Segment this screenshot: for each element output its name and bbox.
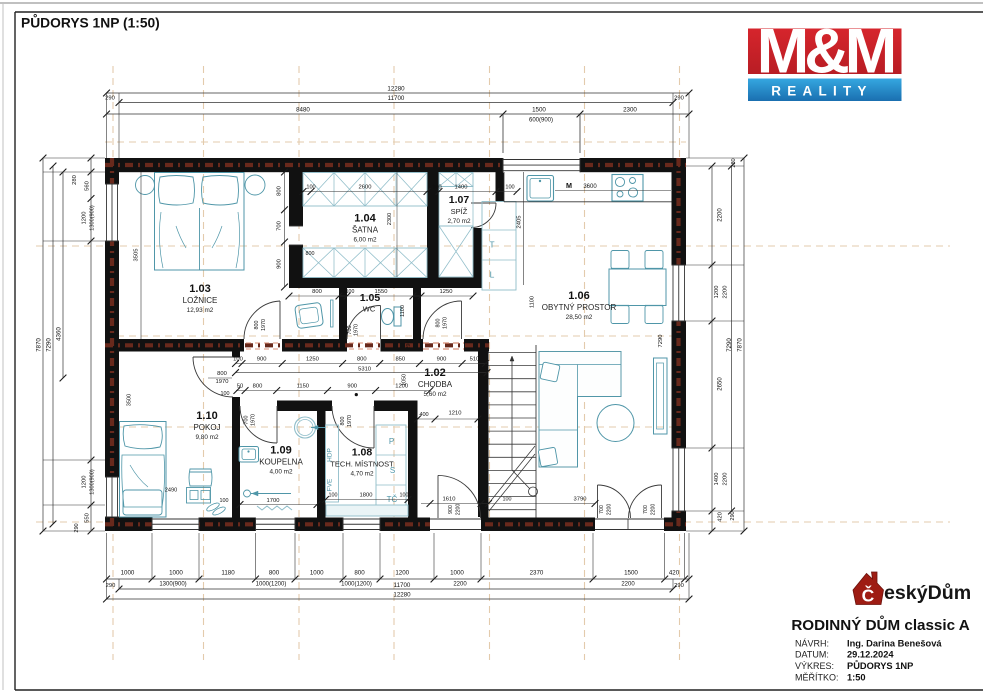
svg-text:3500: 3500 (127, 394, 133, 406)
svg-text:50: 50 (237, 384, 243, 390)
svg-text:1200: 1200 (714, 286, 720, 299)
svg-text:2405: 2405 (517, 216, 523, 229)
svg-text:900: 900 (347, 384, 357, 390)
svg-text:WC: WC (363, 305, 376, 314)
svg-text:3790: 3790 (574, 497, 587, 503)
svg-text:1150: 1150 (297, 384, 309, 390)
svg-text:2200: 2200 (607, 504, 613, 516)
svg-text:KOUPELNA: KOUPELNA (259, 458, 303, 467)
svg-text:REALITY: REALITY (771, 84, 872, 99)
svg-text:800: 800 (306, 251, 315, 257)
svg-text:12,93 m2: 12,93 m2 (187, 307, 214, 314)
svg-text:PŮDORYS 1NP: PŮDORYS 1NP (847, 660, 913, 671)
svg-text:2490: 2490 (165, 488, 177, 494)
svg-text:POKOJ: POKOJ (193, 423, 220, 432)
svg-text:700: 700 (599, 505, 605, 514)
svg-text:4,00 m2: 4,00 m2 (269, 469, 293, 476)
svg-text:1.10: 1.10 (196, 410, 217, 422)
svg-text:290: 290 (674, 583, 684, 589)
svg-text:2600: 2600 (359, 185, 372, 191)
svg-text:1200: 1200 (82, 212, 88, 225)
svg-text:1200: 1200 (395, 570, 409, 577)
svg-text:NÁVRH:: NÁVRH: (795, 639, 829, 649)
svg-text:700: 700 (277, 221, 283, 231)
svg-text:2,70 m2: 2,70 m2 (447, 218, 471, 225)
svg-text:100: 100 (503, 497, 512, 503)
svg-text:7290: 7290 (46, 338, 53, 352)
svg-text:280: 280 (72, 175, 78, 185)
svg-text:P: P (389, 437, 394, 446)
svg-text:1250: 1250 (440, 289, 453, 295)
svg-text:12280: 12280 (393, 592, 411, 599)
svg-text:T: T (489, 240, 494, 250)
svg-text:800: 800 (340, 417, 346, 426)
svg-text:7870: 7870 (737, 338, 744, 352)
svg-text:1.07: 1.07 (449, 194, 470, 206)
svg-text:100: 100 (233, 357, 243, 363)
svg-text:1970: 1970 (347, 415, 353, 427)
svg-text:M: M (566, 181, 572, 190)
svg-text:1500: 1500 (532, 107, 546, 114)
svg-text:1.09: 1.09 (270, 445, 291, 457)
svg-text:LOŽNICE: LOŽNICE (183, 296, 218, 305)
svg-text:2300: 2300 (387, 213, 393, 225)
svg-text:1100: 1100 (400, 305, 406, 317)
svg-text:900: 900 (277, 259, 283, 269)
svg-text:1300(900): 1300(900) (90, 205, 96, 231)
svg-text:900: 900 (437, 357, 447, 363)
svg-text:1000: 1000 (169, 570, 183, 577)
svg-text:1700: 1700 (267, 498, 280, 504)
svg-text:800: 800 (312, 289, 322, 295)
svg-text:100: 100 (221, 391, 230, 397)
svg-text:2300: 2300 (623, 107, 637, 114)
svg-text:Č: Č (862, 585, 875, 606)
svg-text:1.04: 1.04 (354, 213, 376, 225)
svg-text:100: 100 (329, 493, 338, 499)
svg-text:290: 290 (674, 96, 684, 102)
svg-text:100: 100 (400, 493, 409, 499)
svg-text:8480: 8480 (296, 107, 310, 114)
svg-text:9,80 m2: 9,80 m2 (195, 434, 219, 441)
svg-text:400: 400 (419, 412, 428, 418)
svg-text:11700: 11700 (388, 95, 405, 102)
svg-text:2200: 2200 (621, 582, 635, 588)
svg-text:1000: 1000 (310, 570, 324, 577)
svg-text:1000(1200): 1000(1200) (256, 582, 287, 588)
svg-text:1970: 1970 (354, 324, 360, 336)
svg-text:420: 420 (718, 512, 724, 522)
svg-text:L: L (490, 270, 495, 280)
svg-text:2200: 2200 (723, 286, 729, 299)
svg-text:3600: 3600 (583, 184, 597, 190)
svg-text:28,50 m2: 28,50 m2 (566, 314, 593, 321)
svg-text:800: 800 (217, 371, 227, 377)
svg-text:Ing. Darina Benešová: Ing. Darina Benešová (847, 639, 942, 649)
svg-text:2200: 2200 (723, 473, 729, 486)
svg-text:800: 800 (436, 319, 442, 328)
svg-text:CHODBA: CHODBA (418, 380, 453, 389)
svg-text:1200: 1200 (395, 384, 408, 390)
svg-text:850: 850 (395, 357, 405, 363)
svg-text:2200: 2200 (453, 582, 467, 588)
svg-text:1200: 1200 (82, 476, 88, 489)
svg-text:700: 700 (643, 505, 649, 514)
svg-text:100: 100 (346, 289, 355, 295)
svg-text:1300(900): 1300(900) (90, 469, 96, 495)
svg-text:2200: 2200 (718, 208, 724, 222)
svg-text:1180: 1180 (221, 570, 235, 577)
svg-text:100: 100 (306, 185, 315, 191)
svg-text:DATUM:: DATUM: (795, 650, 829, 660)
svg-text:550: 550 (85, 513, 91, 523)
svg-text:2650: 2650 (718, 377, 724, 391)
svg-text:600(900): 600(900) (529, 118, 553, 124)
svg-text:1800: 1800 (360, 493, 373, 499)
svg-text:1400: 1400 (455, 185, 468, 191)
svg-text:1000(1200): 1000(1200) (341, 582, 372, 588)
svg-text:1.06: 1.06 (568, 290, 589, 302)
svg-text:800: 800 (354, 570, 365, 577)
svg-text:1300(900): 1300(900) (159, 582, 186, 588)
svg-text:MĚŘÍTKO:: MĚŘÍTKO: (795, 673, 839, 683)
svg-text:800: 800 (269, 570, 280, 577)
svg-text:1.08: 1.08 (352, 447, 373, 459)
svg-text:6,00 m2: 6,00 m2 (353, 237, 377, 244)
svg-text:TECH. MÍSTNOST: TECH. MÍSTNOST (330, 460, 394, 469)
svg-text:1550: 1550 (375, 289, 388, 295)
svg-text:1210: 1210 (449, 411, 462, 417)
svg-text:ŠATNA: ŠATNA (352, 226, 379, 235)
svg-text:510: 510 (470, 357, 480, 363)
svg-text:2200: 2200 (456, 504, 462, 516)
svg-text:2370: 2370 (530, 570, 544, 577)
svg-text:11700: 11700 (394, 582, 411, 589)
svg-text:RODINNÝ DŮM classic A: RODINNÝ DŮM classic A (791, 615, 969, 634)
svg-text:7290: 7290 (726, 338, 733, 352)
svg-text:5,60 m2: 5,60 m2 (423, 391, 447, 398)
svg-text:FVE: FVE (327, 478, 334, 491)
svg-text:2200: 2200 (651, 504, 657, 516)
svg-text:1.03: 1.03 (189, 283, 210, 295)
svg-text:700: 700 (347, 326, 353, 335)
svg-text:1250: 1250 (306, 357, 319, 363)
svg-text:1000: 1000 (121, 570, 135, 577)
svg-text:5310: 5310 (358, 366, 371, 372)
svg-text:1500: 1500 (624, 570, 638, 577)
svg-text:1610: 1610 (443, 497, 456, 503)
svg-text:SPÍŽ: SPÍŽ (451, 207, 468, 216)
svg-text:100: 100 (432, 185, 441, 191)
svg-text:1.02: 1.02 (424, 367, 445, 379)
svg-text:800: 800 (253, 384, 263, 390)
svg-text:100: 100 (505, 185, 514, 191)
svg-text:900: 900 (448, 505, 454, 514)
svg-text:800: 800 (254, 321, 260, 330)
svg-text:290: 290 (730, 511, 736, 520)
svg-text:12280: 12280 (387, 86, 405, 93)
svg-text:100: 100 (220, 498, 229, 504)
svg-text:420: 420 (669, 570, 680, 577)
svg-text:800: 800 (277, 186, 283, 196)
svg-text:290: 290 (106, 583, 116, 589)
svg-text:29.12.2024: 29.12.2024 (847, 650, 894, 660)
svg-text:560: 560 (85, 181, 91, 191)
svg-text:4,70 m2: 4,70 m2 (350, 471, 374, 478)
svg-text:eskýDům: eskýDům (884, 582, 971, 604)
svg-text:7870: 7870 (36, 338, 43, 352)
svg-text:900: 900 (257, 357, 267, 363)
svg-text:1:50: 1:50 (847, 673, 866, 683)
svg-text:3505: 3505 (134, 249, 140, 262)
svg-text:700: 700 (244, 416, 250, 425)
svg-text:VÝKRES:: VÝKRES: (795, 661, 834, 671)
svg-text:1100: 1100 (530, 296, 536, 308)
svg-text:PŮDORYS 1NP (1:50): PŮDORYS 1NP (1:50) (21, 13, 160, 31)
svg-text:1000: 1000 (450, 570, 464, 577)
svg-text:OBYTNÝ PROSTOR: OBYTNÝ PROSTOR (542, 303, 617, 312)
svg-text:1970: 1970 (443, 317, 449, 329)
svg-text:7290: 7290 (658, 335, 664, 348)
svg-text:290: 290 (406, 341, 412, 350)
svg-text:800: 800 (357, 357, 367, 363)
svg-text:4360: 4360 (56, 327, 63, 341)
svg-text:1970: 1970 (251, 414, 257, 426)
svg-text:1970: 1970 (261, 319, 267, 331)
svg-text:1970: 1970 (216, 379, 229, 385)
svg-text:1400: 1400 (714, 473, 720, 486)
